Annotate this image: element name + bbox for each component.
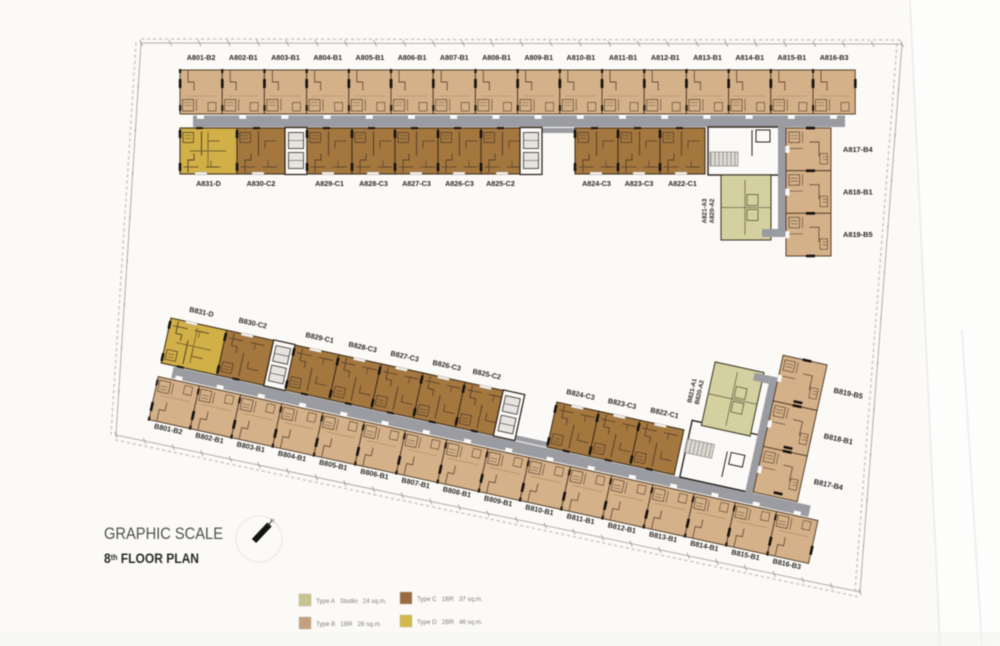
- svg-text:Type D 2BR 46 sq.m.: Type D 2BR 46 sq.m.: [417, 619, 483, 626]
- svg-text:A808-B1: A808-B1: [482, 53, 511, 62]
- svg-text:A805-B1: A805-B1: [356, 53, 385, 62]
- svg-text:A803-B1: A803-B1: [271, 53, 300, 62]
- svg-text:A825-C2: A825-C2: [486, 179, 515, 188]
- svg-text:A807-B1: A807-B1: [440, 53, 469, 62]
- svg-text:A830-C2: A830-C2: [247, 179, 276, 188]
- svg-text:Type B 1BR 28 sq.m.: Type B 1BR 28 sq.m.: [316, 621, 382, 628]
- svg-text:A801-B2: A801-B2: [187, 53, 216, 62]
- svg-text:A813-B1: A813-B1: [693, 53, 722, 62]
- svg-text:N: N: [270, 518, 275, 525]
- svg-text:Type C 1BR 37 sq.m.: Type C 1BR 37 sq.m.: [417, 596, 483, 603]
- svg-text:Type A Studio 24 sq.m.: Type A Studio 24 sq.m.: [316, 598, 387, 605]
- svg-text:A817-B4: A817-B4: [843, 145, 873, 154]
- svg-text:A822-C1: A822-C1: [668, 179, 697, 188]
- svg-text:A823-C3: A823-C3: [625, 179, 654, 188]
- svg-text:A826-C3: A826-C3: [445, 179, 474, 188]
- svg-text:A820-A2: A820-A2: [709, 198, 716, 223]
- svg-text:A810-B1: A810-B1: [567, 53, 596, 62]
- svg-text:A804-B1: A804-B1: [313, 53, 342, 62]
- svg-text:A827-C3: A827-C3: [402, 179, 431, 188]
- svg-text:A811-B1: A811-B1: [609, 53, 637, 62]
- svg-text:A809-B1: A809-B1: [524, 53, 553, 62]
- svg-text:A821-A3: A821-A3: [702, 198, 709, 223]
- svg-text:A806-B1: A806-B1: [398, 53, 427, 62]
- svg-text:A819-B5: A819-B5: [843, 230, 873, 239]
- svg-text:A812-B1: A812-B1: [651, 53, 680, 62]
- svg-text:A815-B1: A815-B1: [778, 53, 807, 62]
- svg-text:A831-D: A831-D: [196, 179, 221, 188]
- svg-text:A816-B3: A816-B3: [820, 53, 849, 62]
- svg-text:8th FLOOR PLAN: 8th FLOOR PLAN: [104, 551, 199, 566]
- svg-text:A802-B1: A802-B1: [229, 53, 258, 62]
- svg-text:A814-B1: A814-B1: [735, 53, 764, 62]
- svg-text:A824-C3: A824-C3: [582, 179, 611, 188]
- svg-text:A828-C3: A828-C3: [359, 179, 388, 188]
- svg-text:GRAPHIC SCALE: GRAPHIC SCALE: [104, 525, 223, 543]
- svg-text:A818-B1: A818-B1: [843, 188, 873, 197]
- svg-text:A829-C1: A829-C1: [315, 179, 344, 188]
